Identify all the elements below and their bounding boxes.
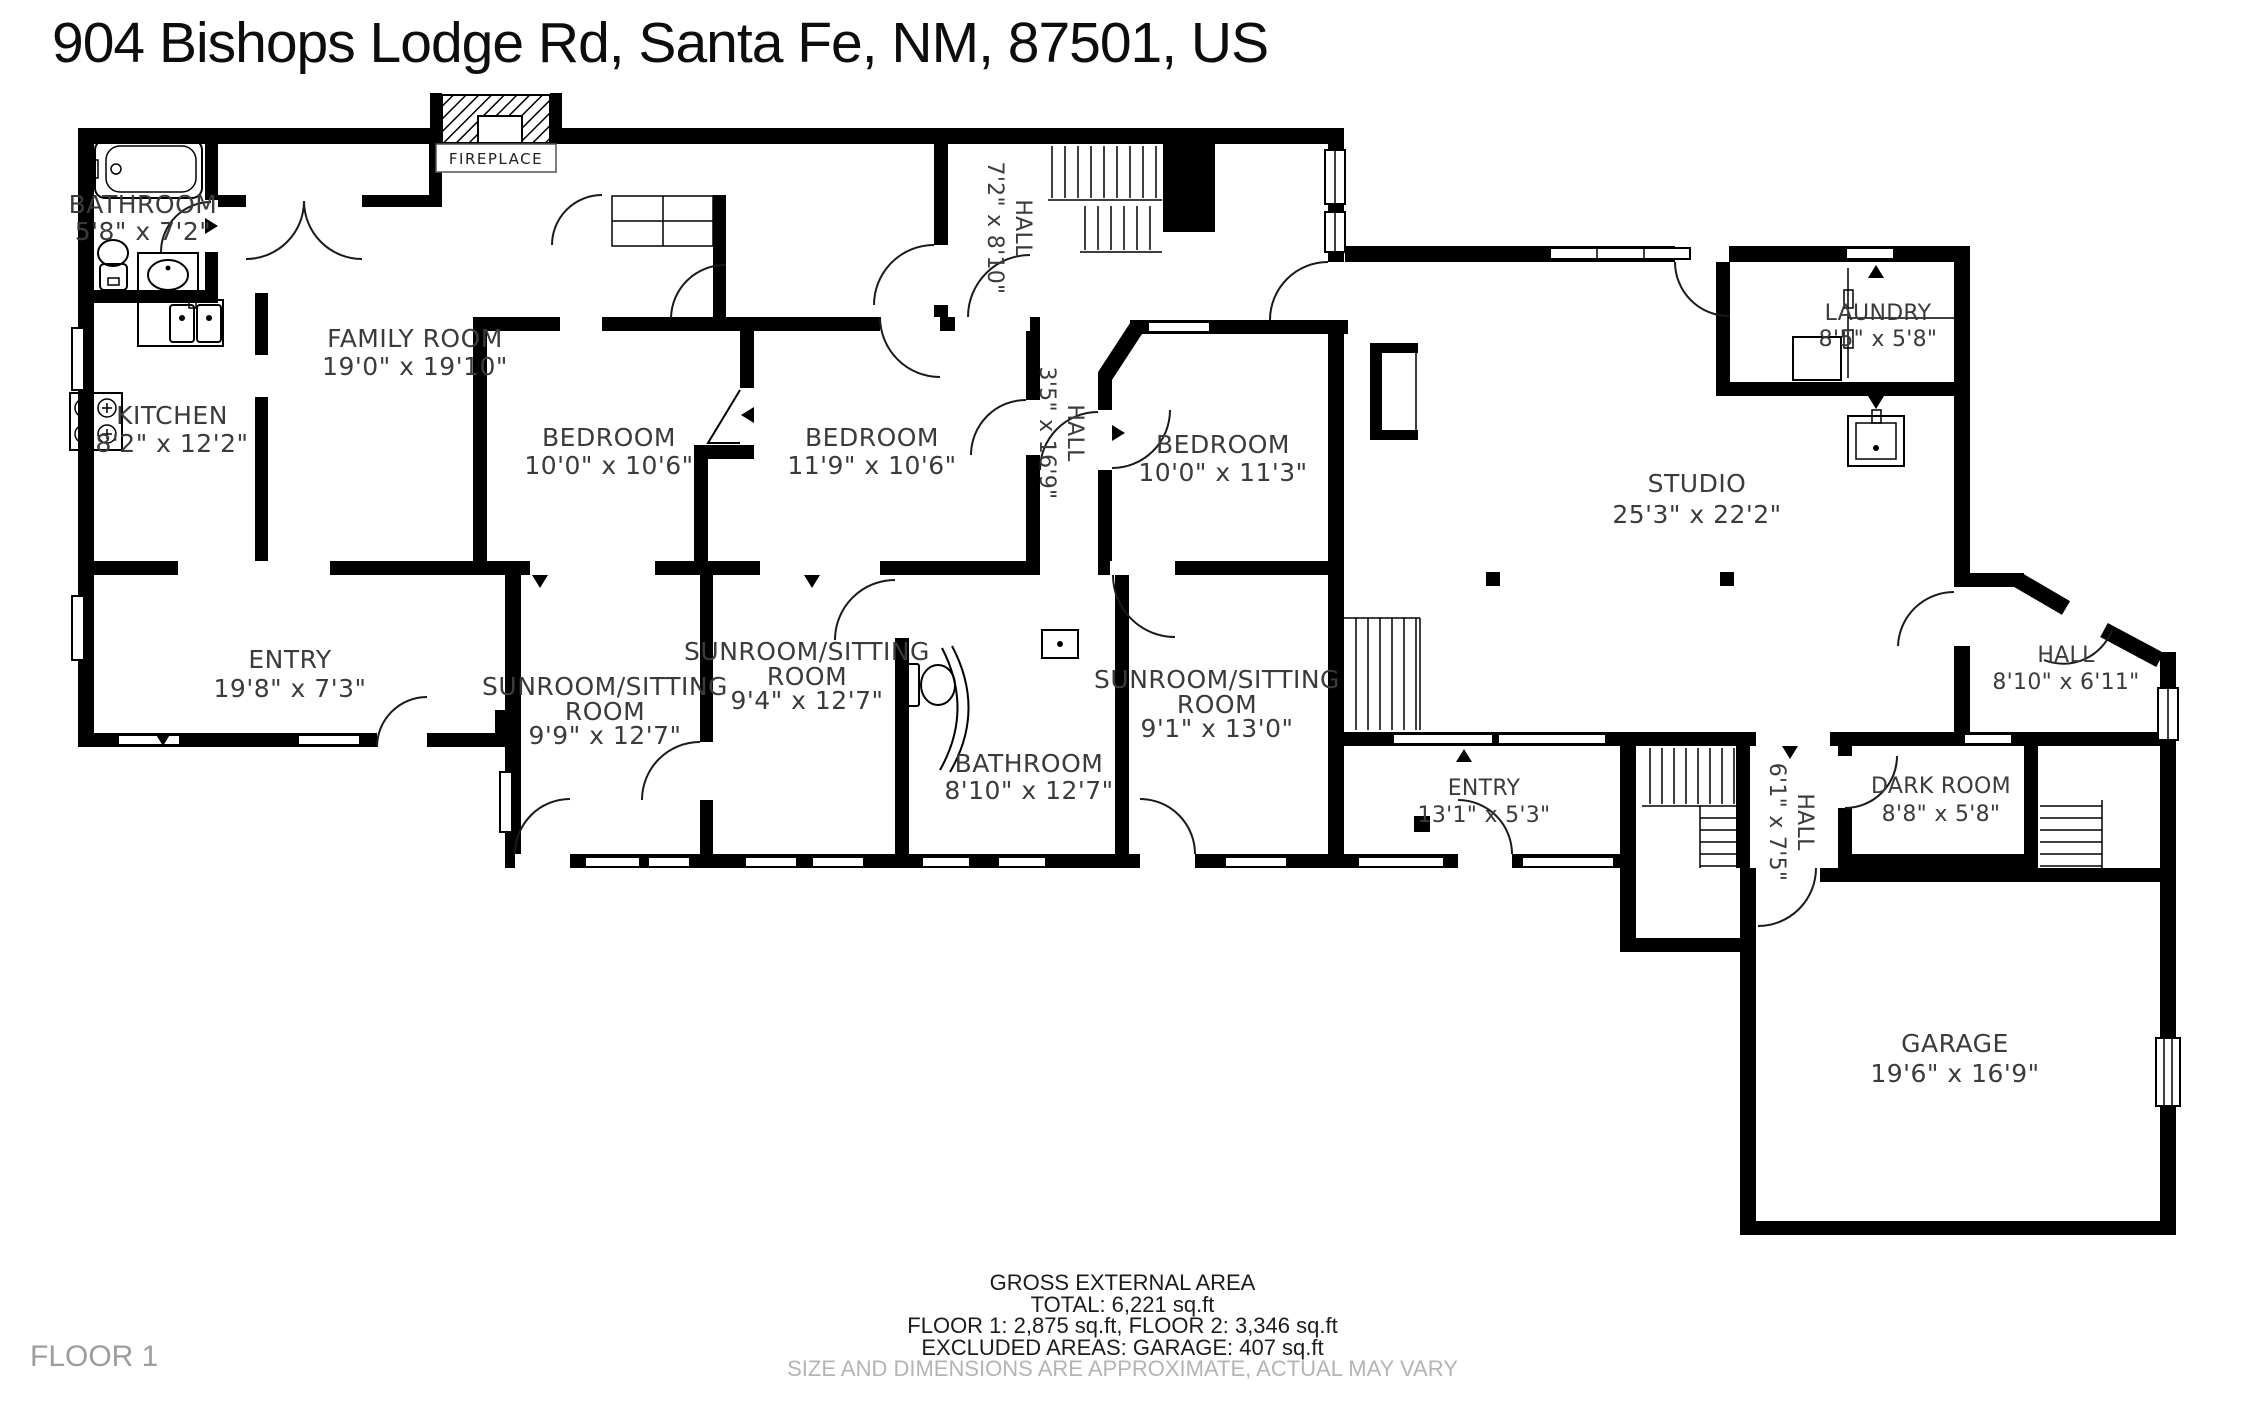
svg-text:BEDROOM: BEDROOM <box>1156 430 1290 459</box>
svg-text:8'5" x 5'8": 8'5" x 5'8" <box>1819 327 1938 352</box>
svg-text:HALL: HALL <box>1010 199 1035 257</box>
room-label-bathroom-1: BATHROOM 5'8" x 7'2" <box>69 190 218 246</box>
room-label-hall-4: HALL 8'10" x 6'11" <box>1992 643 2139 695</box>
toilet-2 <box>907 664 955 706</box>
svg-text:8'2" x 12'2": 8'2" x 12'2" <box>96 429 249 458</box>
room-label-entry-1: ENTRY 19'8" x 7'3" <box>214 645 367 703</box>
room-labels: BATHROOM 5'8" x 7'2" KITCHEN 8'2" x 12'2… <box>69 162 2140 1088</box>
studio-sink <box>1848 410 1904 466</box>
svg-text:BATHROOM: BATHROOM <box>69 190 218 219</box>
svg-text:BEDROOM: BEDROOM <box>805 423 939 452</box>
door-arcs <box>161 195 2112 926</box>
sink-2 <box>1042 630 1078 658</box>
svg-text:11'9" x 10'6": 11'9" x 10'6" <box>787 451 956 480</box>
svg-text:19'8" x 7'3": 19'8" x 7'3" <box>214 674 367 703</box>
floor-label: FLOOR 1 <box>30 1340 158 1374</box>
svg-text:BATHROOM: BATHROOM <box>955 749 1104 778</box>
svg-text:8'10" x 6'11": 8'10" x 6'11" <box>1992 670 2139 695</box>
room-label-family-room: FAMILY ROOM 19'0" x 19'10" <box>322 324 508 381</box>
svg-text:FAMILY ROOM: FAMILY ROOM <box>327 324 503 353</box>
walls <box>78 93 2176 1235</box>
svg-text:8'8" x 5'8": 8'8" x 5'8" <box>1882 802 2001 827</box>
svg-text:10'0" x 11'3": 10'0" x 11'3" <box>1138 458 1307 487</box>
room-label-dark-room: DARK ROOM 8'8" x 5'8" <box>1871 774 2011 827</box>
room-label-entry-2: ENTRY 13'1" x 5'3" <box>1418 776 1551 828</box>
svg-text:10'0" x 10'6": 10'0" x 10'6" <box>524 451 693 480</box>
svg-text:DARK ROOM: DARK ROOM <box>1871 774 2011 799</box>
svg-text:HALL: HALL <box>2037 643 2095 668</box>
room-label-hall-1: HALL 7'2" x 8'10" <box>982 162 1035 295</box>
svg-text:8'10" x 12'7": 8'10" x 12'7" <box>944 776 1113 805</box>
room-label-laundry: LAUNDRY 8'5" x 5'8" <box>1819 301 1938 352</box>
svg-text:ENTRY: ENTRY <box>1448 776 1521 801</box>
svg-text:STUDIO: STUDIO <box>1648 469 1747 498</box>
summary-line-3: FLOOR 1: 2,875 sq.ft, FLOOR 2: 3,346 sq.… <box>0 1315 2245 1337</box>
svg-text:25'3" x 22'2": 25'3" x 22'2" <box>1612 500 1781 529</box>
closet <box>612 196 713 246</box>
room-label-bathroom-2: BATHROOM 8'10" x 12'7" <box>944 749 1113 805</box>
direction-markers <box>155 131 1963 1234</box>
svg-text:3'5" x 16'9": 3'5" x 16'9" <box>1034 367 1059 500</box>
svg-text:13'1" x 5'3": 13'1" x 5'3" <box>1418 803 1551 828</box>
area-summary: GROSS EXTERNAL AREA TOTAL: 6,221 sq.ft F… <box>0 1272 2245 1380</box>
svg-text:19'0" x 19'10": 19'0" x 19'10" <box>322 352 508 381</box>
svg-text:9'4" x 12'7": 9'4" x 12'7" <box>731 686 884 715</box>
room-label-bedroom-1: BEDROOM 10'0" x 10'6" <box>524 423 693 480</box>
summary-line-1: GROSS EXTERNAL AREA <box>0 1272 2245 1294</box>
kitchen-sink <box>138 298 223 346</box>
summary-line-2: TOTAL: 6,221 sq.ft <box>0 1294 2245 1316</box>
summary-disclaimer: SIZE AND DIMENSIONS ARE APPROXIMATE, ACT… <box>0 1358 2245 1380</box>
room-label-sunroom-3: SUNROOM/SITTING ROOM 9'1" x 13'0" <box>1094 665 1340 743</box>
svg-text:5'8" x 7'2": 5'8" x 7'2" <box>75 217 212 246</box>
svg-text:19'6" x 16'9": 19'6" x 16'9" <box>1870 1059 2039 1088</box>
floor-plan-page: 904 Bishops Lodge Rd, Santa Fe, NM, 8750… <box>0 0 2245 1402</box>
room-label-hall-3: HALL 6'1" x 7'5" <box>1764 763 1817 882</box>
svg-text:BEDROOM: BEDROOM <box>542 423 676 452</box>
svg-text:LAUNDRY: LAUNDRY <box>1825 301 1932 326</box>
fireplace-label: FIREPLACE <box>449 150 543 168</box>
diagonal-walls <box>1105 327 2160 660</box>
svg-text:6'1" x 7'5": 6'1" x 7'5" <box>1764 763 1789 882</box>
svg-text:HALL: HALL <box>1792 793 1817 851</box>
floor-plan-canvas: FIREPLACE BATHROOM 5'8" x 7'2" <box>0 0 2245 1402</box>
svg-text:GARAGE: GARAGE <box>1901 1029 2009 1058</box>
room-label-hall-2: HALL 3'5" x 16'9" <box>1034 367 1087 500</box>
svg-text:9'1" x 13'0": 9'1" x 13'0" <box>1141 714 1294 743</box>
svg-text:ENTRY: ENTRY <box>248 645 332 674</box>
svg-text:KITCHEN: KITCHEN <box>116 401 228 430</box>
room-label-bedroom-3: BEDROOM 10'0" x 11'3" <box>1138 430 1307 487</box>
toilet <box>98 240 128 290</box>
fireplace: FIREPLACE <box>436 95 556 172</box>
room-label-bedroom-2: BEDROOM 11'9" x 10'6" <box>787 423 956 480</box>
svg-text:9'9" x 12'7": 9'9" x 12'7" <box>529 721 682 750</box>
room-label-garage: GARAGE 19'6" x 16'9" <box>1870 1029 2039 1088</box>
summary-line-4: EXCLUDED AREAS: GARAGE: 407 sq.ft <box>0 1337 2245 1359</box>
room-label-kitchen: KITCHEN 8'2" x 12'2" <box>96 401 249 458</box>
svg-text:7'2" x 8'10": 7'2" x 8'10" <box>982 162 1007 295</box>
room-label-studio: STUDIO 25'3" x 22'2" <box>1612 469 1781 529</box>
svg-text:HALL: HALL <box>1062 404 1087 462</box>
